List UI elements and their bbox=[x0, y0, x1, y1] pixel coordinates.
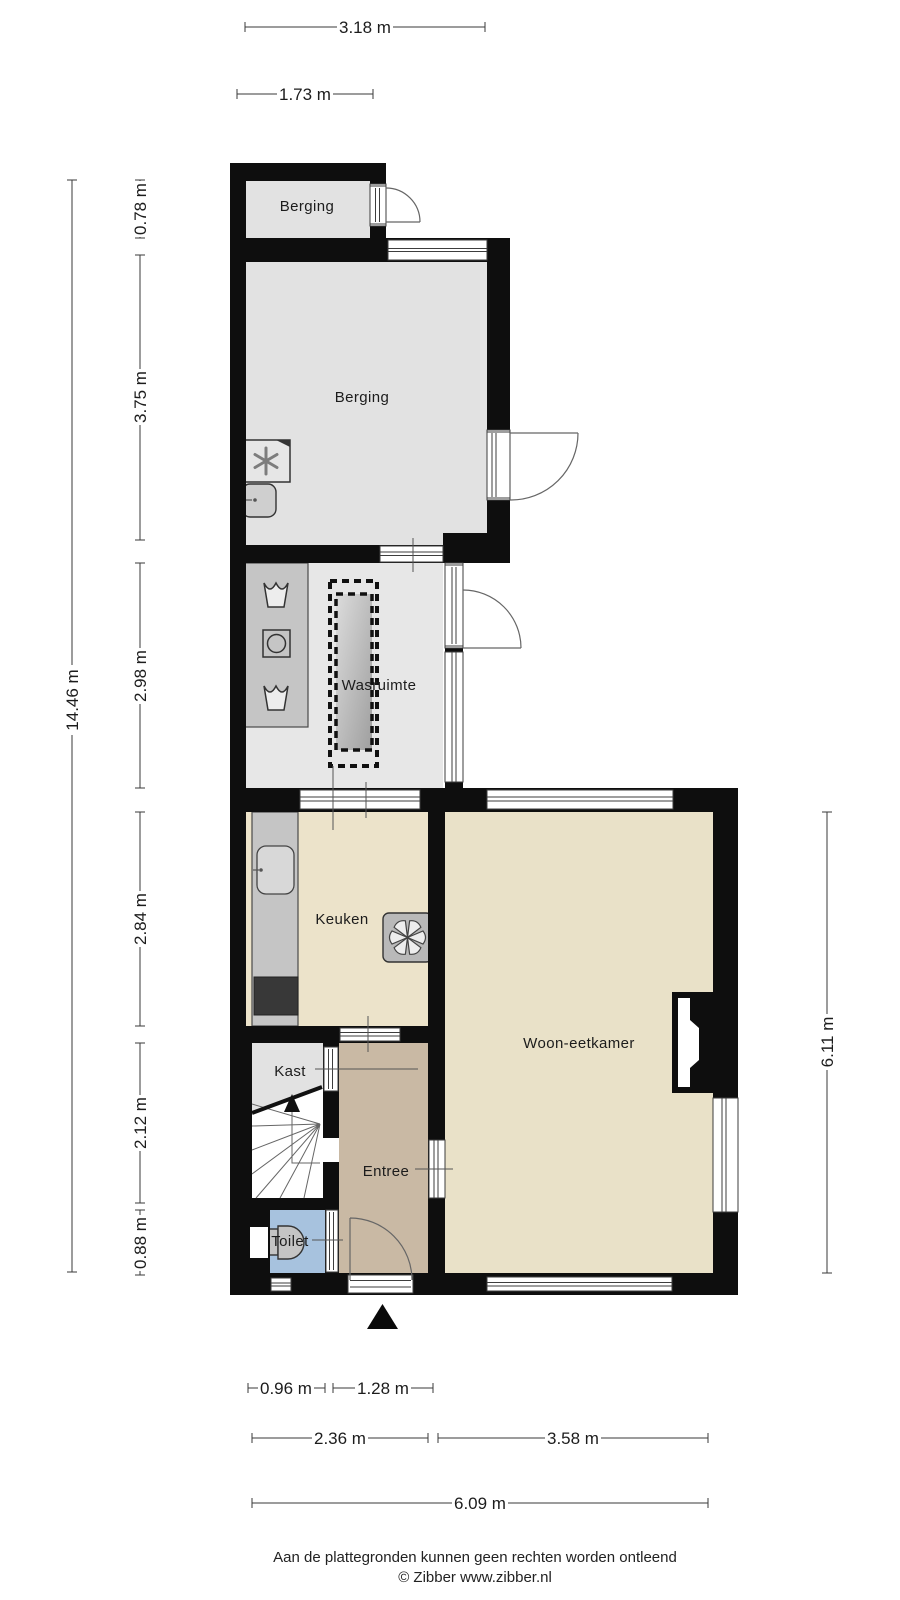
floorplan-canvas: Berging Berging Wasruimte Keuken Woon-ee… bbox=[0, 0, 900, 1600]
svg-text:2.98 m: 2.98 m bbox=[131, 650, 150, 702]
room-label-kast: Kast bbox=[274, 1063, 306, 1080]
svg-text:0.96 m: 0.96 m bbox=[260, 1379, 312, 1398]
svg-text:3.18 m: 3.18 m bbox=[339, 18, 391, 37]
door bbox=[370, 184, 420, 226]
window bbox=[388, 240, 487, 260]
dim-bot-609: 6.09 m bbox=[252, 1494, 708, 1513]
dim-seg-088: 0.88 m bbox=[131, 1210, 150, 1275]
svg-text:1.73 m: 1.73 m bbox=[279, 85, 331, 104]
window bbox=[487, 790, 673, 809]
entrance-arrow-icon bbox=[367, 1304, 398, 1329]
dim-seg-375: 3.75 m bbox=[131, 255, 150, 540]
dim-bot-358: 3.58 m bbox=[438, 1429, 708, 1448]
dim-top-173: 1.73 m bbox=[237, 85, 373, 104]
dim-left-total: 14.46 m bbox=[63, 180, 82, 1272]
svg-text:1.28 m: 1.28 m bbox=[357, 1379, 409, 1398]
svg-text:6.11 m: 6.11 m bbox=[818, 1017, 837, 1068]
room-label-berging-top: Berging bbox=[280, 198, 335, 215]
svg-text:3.75 m: 3.75 m bbox=[131, 371, 150, 423]
room-label-berging: Berging bbox=[335, 389, 390, 406]
svg-text:14.46 m: 14.46 m bbox=[63, 669, 82, 730]
svg-text:3.58 m: 3.58 m bbox=[547, 1429, 599, 1448]
footer-copyright: © Zibber www.zibber.nl bbox=[398, 1569, 552, 1586]
wasruimte-counter bbox=[245, 563, 308, 727]
dim-seg-212: 2.12 m bbox=[131, 1043, 150, 1203]
footer-disclaimer: Aan de plattegronden kunnen geen rechten… bbox=[273, 1549, 677, 1566]
dim-right-611: 6.11 m bbox=[818, 812, 837, 1273]
ventilation-unit bbox=[243, 440, 290, 482]
room-label-entree: Entree bbox=[363, 1163, 410, 1180]
svg-text:2.84 m: 2.84 m bbox=[131, 893, 150, 945]
dim-bot-128: 1.28 m bbox=[333, 1379, 433, 1398]
window bbox=[713, 1098, 738, 1212]
door bbox=[326, 1210, 338, 1272]
window bbox=[487, 1277, 672, 1291]
floors bbox=[246, 181, 713, 1275]
dim-seg-298: 2.98 m bbox=[131, 563, 150, 788]
understairs-opening bbox=[323, 1138, 339, 1162]
dim-seg-078: 0.78 m bbox=[131, 180, 150, 238]
svg-text:2.36 m: 2.36 m bbox=[314, 1429, 366, 1448]
room-entree-floor bbox=[339, 1043, 428, 1275]
berging-sink bbox=[242, 484, 276, 517]
dim-bot-236: 2.36 m bbox=[252, 1429, 428, 1448]
dim-seg-284: 2.84 m bbox=[131, 812, 150, 1026]
window bbox=[271, 1278, 291, 1291]
door bbox=[487, 430, 578, 500]
svg-text:6.09 m: 6.09 m bbox=[454, 1494, 506, 1513]
room-label-toilet: Toilet bbox=[271, 1233, 309, 1250]
door bbox=[445, 563, 521, 648]
dim-bot-096: 0.96 m bbox=[248, 1379, 325, 1398]
window bbox=[445, 652, 463, 782]
svg-text:2.12 m: 2.12 m bbox=[131, 1097, 150, 1149]
keuken-counter bbox=[252, 812, 298, 1026]
extractor-hob bbox=[383, 913, 432, 962]
svg-text:0.88 m: 0.88 m bbox=[131, 1217, 150, 1269]
wall-niche bbox=[250, 1227, 268, 1258]
room-label-keuken: Keuken bbox=[315, 911, 368, 928]
stove bbox=[254, 977, 298, 1015]
svg-text:0.78 m: 0.78 m bbox=[131, 183, 150, 235]
drying-rack bbox=[330, 581, 377, 766]
dim-top-318: 3.18 m bbox=[245, 18, 485, 37]
room-label-woon-eetkamer: Woon-eetkamer bbox=[523, 1035, 635, 1052]
keuken-sink bbox=[253, 846, 294, 894]
footer: Aan de plattegronden kunnen geen rechten… bbox=[273, 1549, 677, 1586]
room-label-wasruimte: Wasruimte bbox=[342, 677, 417, 694]
